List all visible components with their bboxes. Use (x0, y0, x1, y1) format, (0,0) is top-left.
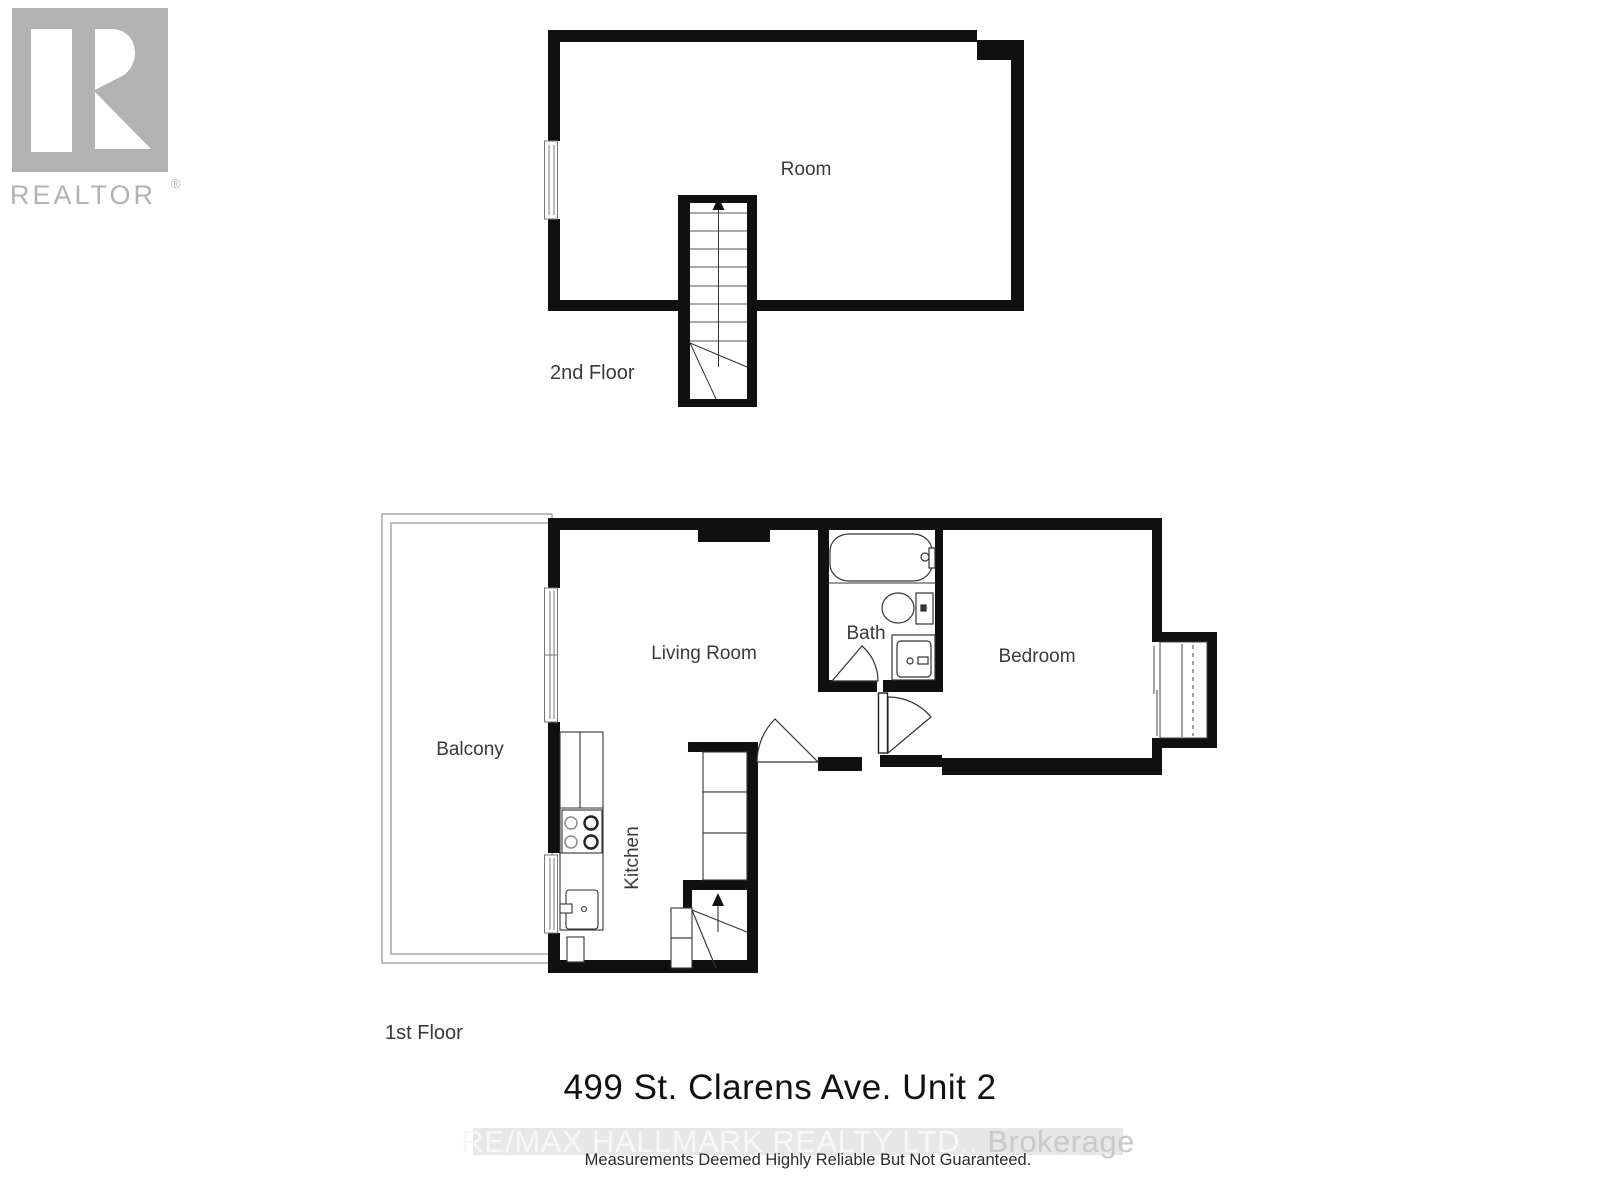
disclaimer-text: Measurements Deemed Highly Reliable But … (208, 1151, 1408, 1170)
balcony-label: Balcony (436, 739, 504, 761)
stove-icon (562, 810, 602, 853)
kitchen-cabinet-end-icon (567, 937, 584, 962)
bedroom-door-icon (879, 693, 932, 753)
registered-mark: ® (171, 176, 181, 191)
page-title: 499 St. Clarens Ave. Unit 2 (180, 1068, 1380, 1108)
second-floor-label: 2nd Floor (550, 362, 635, 385)
living-room-label: Living Room (651, 643, 757, 665)
first-floor-plan (382, 514, 1217, 973)
bathtub-icon (830, 534, 935, 581)
kitchen-window-icon (545, 855, 558, 933)
first-floor-stairs-icon (671, 893, 747, 968)
bath-door-icon (832, 646, 878, 681)
pantry-cabinets-icon (703, 752, 747, 880)
kitchen-sink-icon (560, 890, 598, 929)
toilet-icon (882, 593, 933, 624)
shower-icon (892, 635, 935, 680)
living-room-window-icon (545, 588, 558, 722)
room-label: Room (781, 159, 832, 181)
realtor-logo-text: REALTOR (10, 180, 156, 211)
entry-door-icon (757, 719, 818, 762)
floorplan-canvas: REALTOR ® Room 2nd Floor Balcony Living … (0, 0, 1600, 1200)
realtor-logo-icon (12, 8, 168, 172)
bath-label: Bath (846, 623, 885, 645)
second-floor-window-icon (545, 141, 558, 219)
second-floor-plan (545, 30, 1025, 407)
bedroom-label: Bedroom (998, 646, 1075, 668)
first-floor-label: 1st Floor (385, 1022, 463, 1045)
kitchen-label: Kitchen (622, 826, 644, 889)
bedroom-closet-icon (1154, 642, 1207, 738)
